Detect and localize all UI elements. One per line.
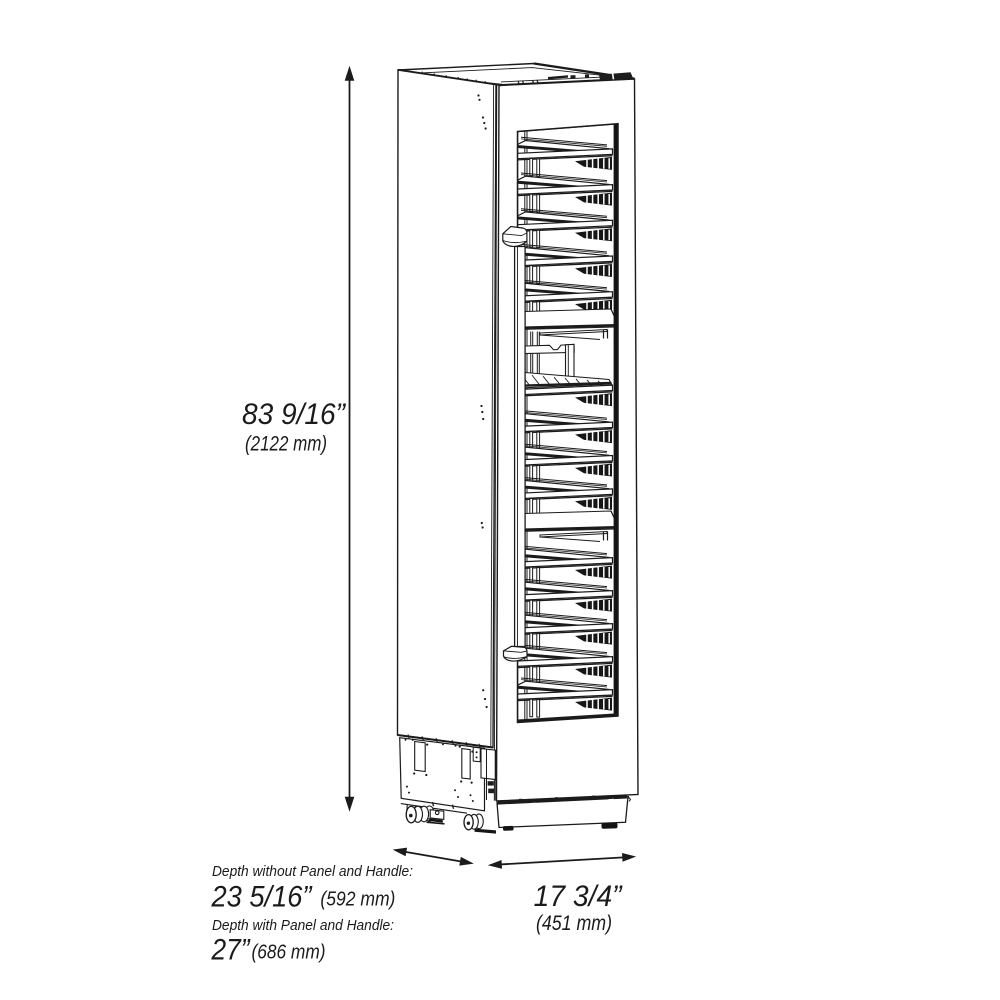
svg-text:(2122 mm): (2122 mm) [245, 433, 327, 456]
svg-text:(686 mm): (686 mm) [252, 942, 326, 964]
svg-text:Depth without Panel and Handle: Depth without Panel and Handle: [212, 863, 413, 880]
svg-text:27”: 27” [211, 934, 252, 967]
svg-text:Depth with Panel and Handle:: Depth with Panel and Handle: [212, 917, 394, 934]
svg-text:23 5/16”: 23 5/16” [211, 881, 314, 914]
svg-text:17 3/4”: 17 3/4” [534, 880, 624, 913]
svg-text:83 9/16”: 83 9/16” [242, 398, 347, 431]
svg-text:(592 mm): (592 mm) [320, 889, 395, 911]
svg-text:(451 mm): (451 mm) [536, 912, 612, 935]
